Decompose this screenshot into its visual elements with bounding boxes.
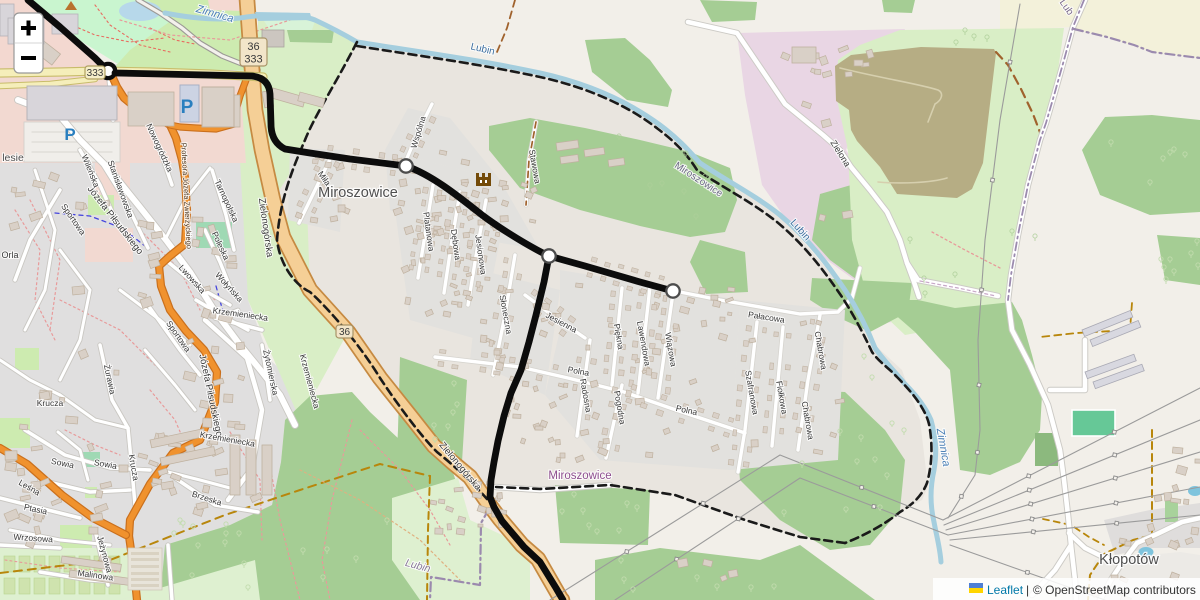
- svg-text:Miroszowice: Miroszowice: [318, 185, 398, 201]
- svg-text:Kłopotów: Kłopotów: [1099, 552, 1159, 568]
- svg-text:© OpenStreetMap contributors: © OpenStreetMap contributors: [1033, 583, 1196, 597]
- svg-text:333: 333: [87, 68, 104, 79]
- svg-text:36: 36: [247, 41, 259, 53]
- svg-text:333: 333: [244, 53, 262, 65]
- svg-text:36: 36: [339, 327, 351, 338]
- svg-text:|: |: [1026, 583, 1029, 597]
- svg-text:P: P: [64, 125, 75, 144]
- svg-text:Orla: Orla: [1, 250, 18, 260]
- svg-text:Leaflet: Leaflet: [987, 583, 1024, 597]
- svg-text:Miroszowice: Miroszowice: [548, 470, 611, 482]
- svg-text:P: P: [181, 97, 194, 118]
- svg-text:lesie: lesie: [2, 152, 24, 164]
- svg-text:Krucza: Krucza: [37, 398, 64, 408]
